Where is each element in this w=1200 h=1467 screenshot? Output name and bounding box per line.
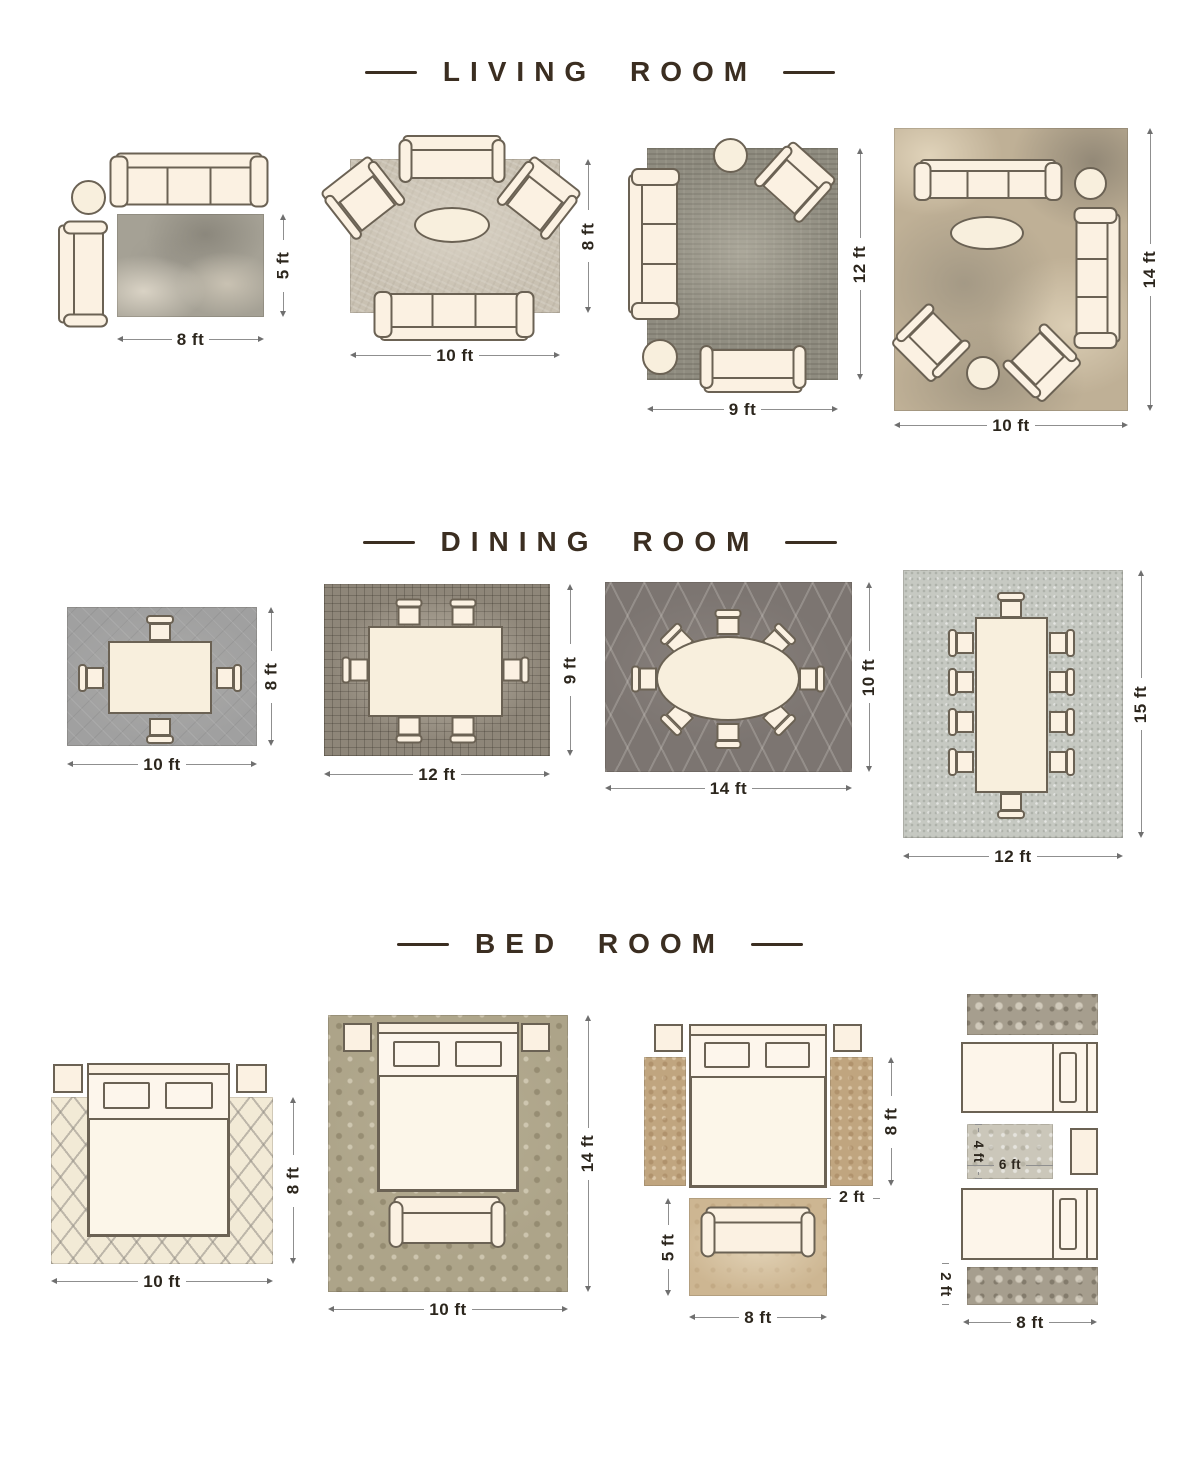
twin-bed <box>961 1042 1098 1113</box>
bed-duvet <box>88 1118 229 1236</box>
dim-label: 15 ft <box>1133 685 1150 722</box>
bed-headboard <box>1086 1189 1088 1259</box>
dim-label: 5 ft <box>275 252 292 280</box>
loveseat-seat <box>410 149 493 179</box>
dining-chair <box>342 657 369 684</box>
dim-label: 12 ft <box>413 766 460 783</box>
dim-label: 14 ft <box>1142 251 1159 288</box>
bed-pillow <box>704 1042 750 1068</box>
bed-pillow <box>103 1082 150 1109</box>
width-dimension: 14 ft <box>605 779 852 797</box>
nightstand <box>654 1024 683 1052</box>
sofa-arm <box>1074 207 1118 224</box>
dining-chair <box>450 599 477 626</box>
runner-length-dimension: 8 ft <box>882 1057 900 1186</box>
sofa-arm <box>374 291 393 338</box>
bench-arm <box>490 1201 505 1248</box>
bed-headboard <box>1086 1043 1088 1112</box>
rug-height-dimension: 5 ft <box>659 1198 677 1296</box>
round-side-table <box>966 356 1000 390</box>
bed-pillow <box>455 1041 502 1068</box>
runner-rug <box>967 1267 1098 1305</box>
nightstand <box>833 1024 862 1052</box>
sofa-arm <box>1045 162 1063 201</box>
dim-label: 9 ft <box>724 401 762 418</box>
height-dimension: 8 ft <box>262 607 280 746</box>
bed-pillow <box>165 1082 212 1109</box>
width-dimension: 8 ft <box>117 330 264 348</box>
mat-width-dimension: 6 ft <box>967 1157 1053 1173</box>
arrow-down-icon <box>280 311 286 317</box>
sofa-arm <box>631 302 680 320</box>
dim-label: 8 ft <box>172 331 210 348</box>
arrow-right-icon <box>258 336 264 342</box>
dim-label: 14 ft <box>705 780 752 797</box>
dim-label: 9 ft <box>562 656 579 684</box>
rug-width-dimension: 8 ft <box>689 1308 827 1326</box>
height-dimension: 8 ft <box>579 159 597 313</box>
dining-chair <box>1049 629 1075 657</box>
dim-label: 2 ft <box>938 1272 953 1297</box>
dining-chair <box>948 748 974 776</box>
bed-duvet <box>690 1076 826 1187</box>
section-title-dining: DINING ROOM <box>0 526 1200 558</box>
dining-chair <box>715 609 742 635</box>
bench-seat <box>713 1222 803 1254</box>
section-title-living: LIVING ROOM <box>0 56 1200 88</box>
sofa <box>110 153 269 208</box>
runner-rug <box>967 994 1098 1035</box>
sofa-arm <box>110 156 129 208</box>
dining-chair <box>948 708 974 736</box>
bed <box>377 1022 519 1192</box>
height-dimension: 10 ft <box>860 582 878 772</box>
bed-headboard <box>691 1026 825 1036</box>
dining-chair <box>1049 668 1075 696</box>
nightstand <box>521 1023 550 1052</box>
oval-dining-table <box>656 636 800 721</box>
loveseat <box>700 345 807 393</box>
section-title-text: LIVING ROOM <box>443 56 757 88</box>
dim-label: 12 ft <box>989 848 1036 865</box>
nightstand <box>236 1064 267 1093</box>
bed-pillow <box>1059 1052 1078 1103</box>
dining-chair <box>78 664 104 692</box>
round-side-table <box>713 138 748 173</box>
height-dimension: 9 ft <box>561 584 579 756</box>
runner-width-dimension: 2 ft <box>936 1260 954 1308</box>
width-dimension: 10 ft <box>51 1272 273 1290</box>
loveseat <box>58 221 108 328</box>
dining-chair <box>631 666 657 693</box>
title-dash <box>397 943 449 946</box>
dining-chair <box>450 717 477 744</box>
bed <box>87 1063 230 1237</box>
sofa <box>628 168 680 320</box>
runner-rug <box>830 1057 873 1186</box>
dim-label: 10 ft <box>987 417 1034 434</box>
dining-chair <box>1049 708 1075 736</box>
loveseat-seat <box>711 349 794 379</box>
sofa <box>374 291 535 341</box>
runner-length-dimension: 8 ft <box>963 1313 1097 1331</box>
sofa-arm <box>631 168 680 186</box>
dim-label: 12 ft <box>852 245 869 282</box>
bench <box>389 1196 506 1248</box>
sofa-arm <box>249 156 268 208</box>
bed-blanket-edge <box>1052 1043 1054 1112</box>
sofa-arm <box>1074 332 1118 349</box>
title-dash <box>783 71 835 74</box>
dining-chair <box>216 664 242 692</box>
loveseat-arm <box>399 139 413 183</box>
title-dash <box>785 541 837 544</box>
dim-label: 2 ft <box>834 1190 870 1206</box>
dining-chair <box>715 723 742 749</box>
loveseat-back <box>704 377 802 393</box>
height-dimension: 14 ft <box>579 1015 597 1292</box>
sofa-cushions <box>927 170 1049 200</box>
loveseat <box>399 135 506 183</box>
dining-chair <box>1049 748 1075 776</box>
loveseat-arm <box>63 314 109 328</box>
sofa <box>914 159 1063 201</box>
living-rug-8x5 <box>117 214 264 317</box>
title-dash <box>751 943 803 946</box>
sofa-arm <box>515 291 534 338</box>
dining-chair <box>503 657 530 684</box>
dim-label: 8 ft <box>739 1309 777 1326</box>
width-dimension: 10 ft <box>894 416 1128 434</box>
dim-label: 10 ft <box>138 756 185 773</box>
dining-chair <box>146 718 174 744</box>
nightstand <box>53 1064 83 1093</box>
loveseat-arm <box>63 221 109 235</box>
width-dimension: 12 ft <box>324 765 550 783</box>
sofa-cushions <box>124 166 254 205</box>
bed-pillow <box>765 1042 811 1068</box>
nightstand <box>343 1023 372 1052</box>
dining-table <box>108 641 212 714</box>
bench-arm <box>801 1211 816 1257</box>
height-dimension: 12 ft <box>851 148 869 380</box>
bed-pillow <box>1059 1198 1078 1250</box>
oval-coffee-table <box>414 207 490 243</box>
width-dimension: 10 ft <box>67 755 257 773</box>
loveseat-arm <box>793 345 807 389</box>
sofa <box>1074 207 1121 349</box>
height-dimension: 8 ft <box>284 1097 302 1264</box>
dining-chair <box>799 666 825 693</box>
dim-label: 10 ft <box>138 1273 185 1290</box>
sofa-arm <box>914 162 932 201</box>
bed-headboard <box>379 1024 517 1034</box>
dining-table <box>368 626 503 717</box>
dim-label: 5 ft <box>660 1233 677 1261</box>
round-side-table <box>1074 167 1107 200</box>
bed <box>689 1024 827 1188</box>
width-dimension: 10 ft <box>350 346 560 364</box>
dim-label: 8 ft <box>263 663 280 691</box>
bed-pillow <box>393 1041 440 1068</box>
dining-chair <box>396 717 423 744</box>
bed-headboard <box>89 1065 228 1075</box>
round-side-table <box>71 180 106 215</box>
dining-chair <box>146 615 174 641</box>
bed-blanket-edge <box>1052 1189 1054 1259</box>
loveseat-seat <box>73 232 104 315</box>
nightstand <box>1070 1128 1098 1175</box>
dining-chair <box>396 599 423 626</box>
dim-label: 10 ft <box>424 1301 471 1318</box>
dining-chair <box>948 668 974 696</box>
dim-label: 10 ft <box>861 658 878 695</box>
height-dimension: 15 ft <box>1132 570 1150 838</box>
dim-label: 6 ft <box>994 1158 1026 1172</box>
dining-table <box>975 617 1048 793</box>
dim-label: 8 ft <box>1011 1314 1049 1331</box>
bench-arm <box>389 1201 404 1248</box>
runner-rug <box>644 1057 686 1186</box>
dim-label: 10 ft <box>431 347 478 364</box>
sofa-cushions <box>641 182 678 307</box>
bench-arm <box>701 1211 716 1257</box>
dim-label: 8 ft <box>285 1167 302 1195</box>
section-title-bed: BED ROOM <box>0 928 1200 960</box>
bench-seat <box>401 1212 492 1244</box>
height-dimension: 5 ft <box>274 214 292 317</box>
dim-label: 14 ft <box>580 1135 597 1172</box>
height-dimension: 14 ft <box>1141 128 1159 411</box>
dining-chair <box>948 629 974 657</box>
round-side-table <box>642 339 678 375</box>
section-title-text: DINING ROOM <box>441 526 760 558</box>
width-dimension: 12 ft <box>903 847 1123 865</box>
loveseat-arm <box>492 139 506 183</box>
width-dimension: 9 ft <box>647 400 838 418</box>
sofa-cushions <box>388 293 520 329</box>
dining-chair <box>997 592 1025 618</box>
rug-size-guide: LIVING ROOM 8 ft 5 ft <box>0 0 1200 1467</box>
loveseat-arm <box>700 345 714 389</box>
sofa-cushions <box>1075 220 1108 336</box>
bed-duvet <box>378 1075 518 1191</box>
twin-bed <box>961 1188 1098 1260</box>
runner-width-dimension: 2 ft <box>824 1190 880 1206</box>
width-dimension: 10 ft <box>328 1300 568 1318</box>
title-dash <box>363 541 415 544</box>
dim-label: 8 ft <box>580 222 597 250</box>
section-title-text: BED ROOM <box>475 928 725 960</box>
title-dash <box>365 71 417 74</box>
dim-label: 8 ft <box>883 1108 900 1136</box>
dining-chair <box>997 793 1025 819</box>
oval-coffee-table <box>950 216 1024 250</box>
bench <box>701 1207 816 1258</box>
